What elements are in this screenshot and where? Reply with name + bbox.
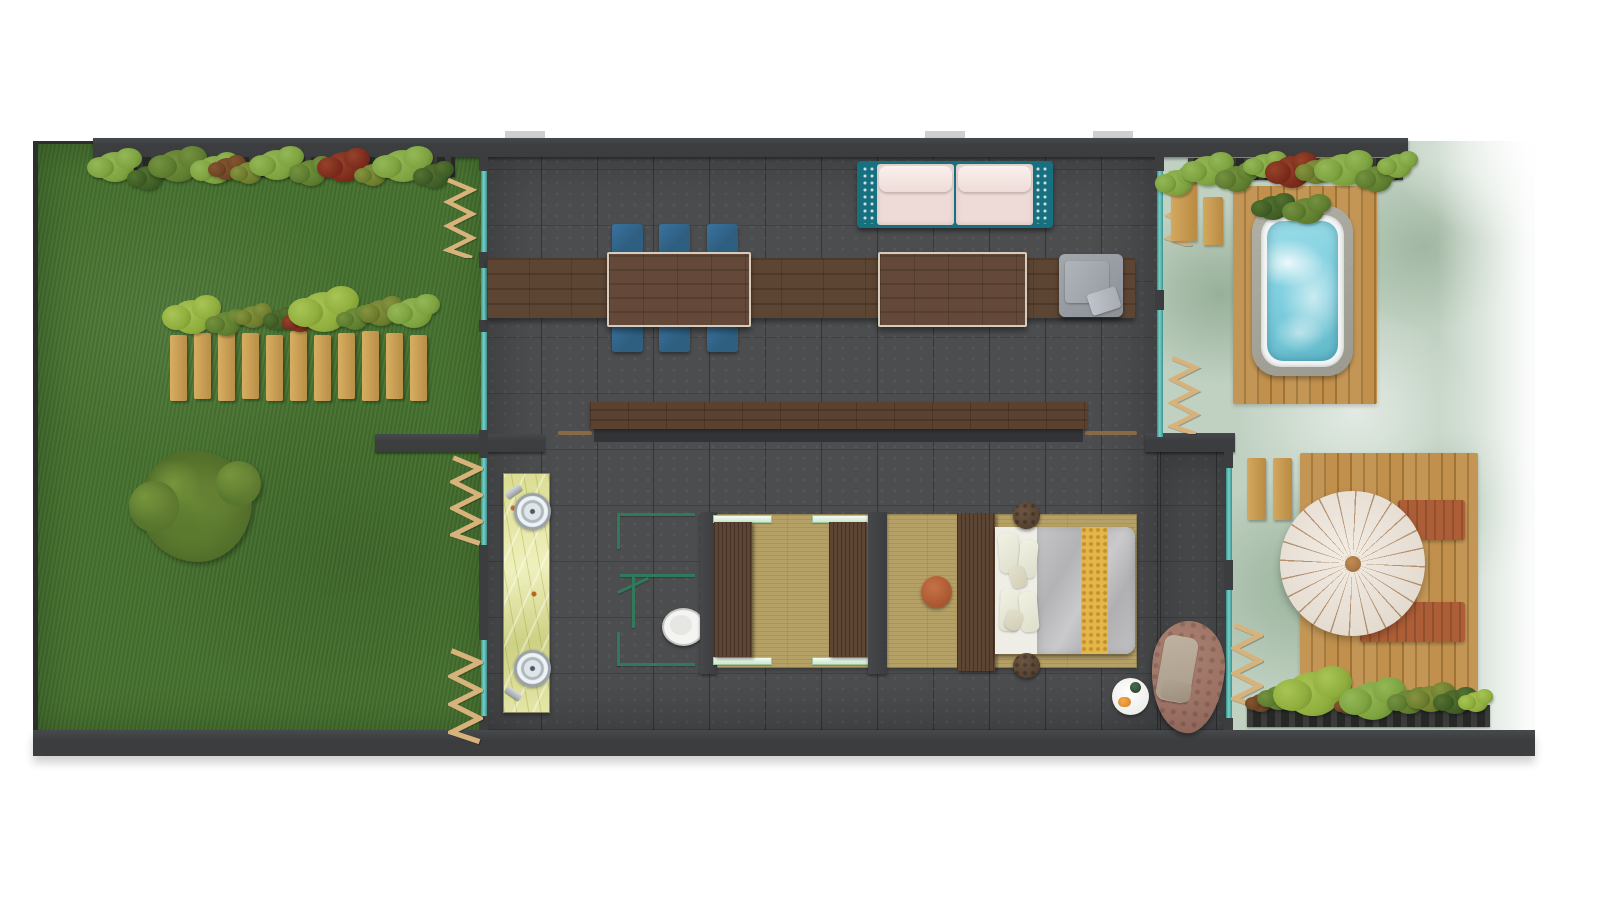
shelf-rod (558, 431, 592, 435)
shrub (396, 298, 432, 328)
stepping-plank (1247, 458, 1266, 520)
shrub (1286, 672, 1340, 716)
stepping-plank (1203, 197, 1223, 245)
wall-post (1155, 290, 1164, 310)
dining-table (607, 252, 751, 327)
garden-tree (140, 450, 252, 562)
shrub (1384, 154, 1412, 178)
wall-post (1224, 560, 1233, 590)
hot-tub-water (1267, 221, 1338, 361)
privacy-screen (450, 452, 483, 547)
toilet-partition (617, 663, 695, 666)
sofa-arm (1035, 165, 1048, 224)
dining-chair (612, 224, 643, 254)
wall-post (1155, 157, 1164, 171)
sofa (857, 161, 1053, 228)
toilet-partition (632, 576, 635, 628)
wall-post (1224, 718, 1233, 730)
shelf-base (594, 428, 1083, 442)
partition-wall (868, 512, 887, 674)
hot-tub (1252, 206, 1353, 376)
pouf (921, 576, 952, 608)
floor-plan-canvas (0, 0, 1600, 900)
privacy-screen (448, 645, 483, 745)
dining-counter (487, 258, 1135, 318)
dining-table (878, 252, 1027, 327)
croissant (1118, 697, 1131, 707)
glass-shelf (713, 657, 772, 665)
bed-runner (1081, 527, 1108, 654)
toilet-partition (617, 513, 695, 516)
wall-post (479, 157, 488, 171)
privacy-screen (443, 178, 477, 258)
bedside-stool (1013, 502, 1040, 529)
shrub (1464, 692, 1488, 712)
interior-wall-stub-left (375, 434, 545, 452)
stepping-plank (1273, 458, 1292, 520)
sofa-arm (862, 165, 875, 224)
vessel-sink (514, 493, 551, 530)
bottom-exterior-wall (33, 730, 1535, 756)
wall-shelf (590, 402, 1087, 429)
wall-post (479, 320, 488, 332)
shrub-overhang (1290, 198, 1324, 224)
wall-post (479, 545, 488, 640)
dining-chair (707, 224, 738, 254)
dining-chair (659, 224, 690, 254)
shelf-rod (1085, 431, 1137, 435)
bedside-stool (1013, 653, 1040, 678)
toilet-partition (617, 632, 620, 666)
toilet (662, 608, 705, 646)
vessel-sink (514, 650, 551, 687)
toilet-partition (617, 513, 620, 549)
bed-headboard (957, 513, 995, 671)
wardrobe (829, 522, 867, 657)
lounge-armchair (1059, 254, 1123, 317)
cup (1130, 682, 1141, 693)
sofa-cushions (877, 164, 1033, 225)
privacy-screen (1167, 356, 1201, 434)
wardrobe (714, 522, 752, 657)
wall-post (1224, 452, 1233, 468)
parasol (1280, 491, 1425, 636)
glass-shelf (812, 657, 870, 665)
picket-fence (170, 333, 442, 403)
shrub (240, 306, 266, 328)
